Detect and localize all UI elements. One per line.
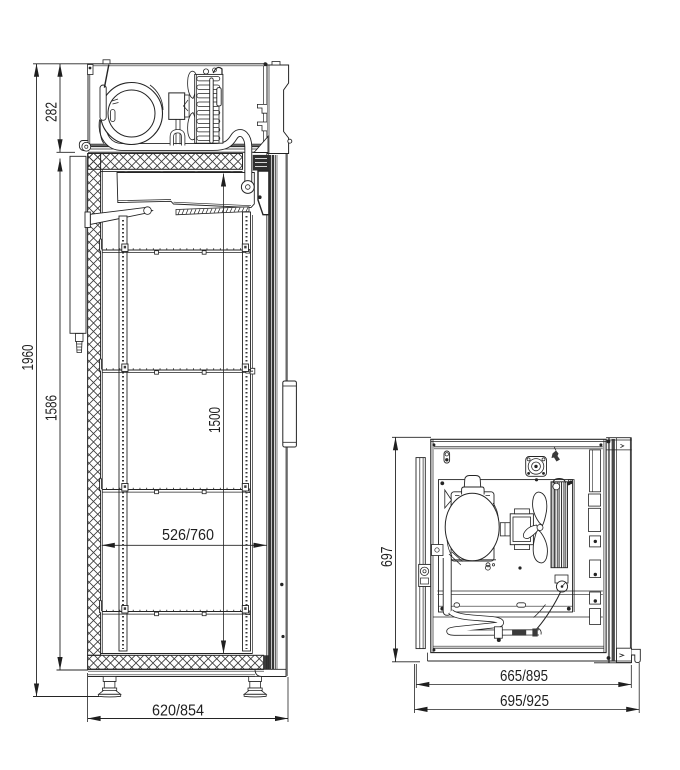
svg-text:1960: 1960 (20, 344, 37, 370)
svg-text:1500: 1500 (207, 407, 224, 433)
svg-text:620/854: 620/854 (152, 703, 204, 720)
svg-text:695/925: 695/925 (500, 693, 549, 710)
svg-text:282: 282 (44, 102, 61, 122)
svg-text:1586: 1586 (44, 395, 61, 421)
svg-text:526/760: 526/760 (162, 527, 214, 544)
svg-text:665/895: 665/895 (500, 668, 548, 685)
svg-text:697: 697 (379, 546, 396, 567)
